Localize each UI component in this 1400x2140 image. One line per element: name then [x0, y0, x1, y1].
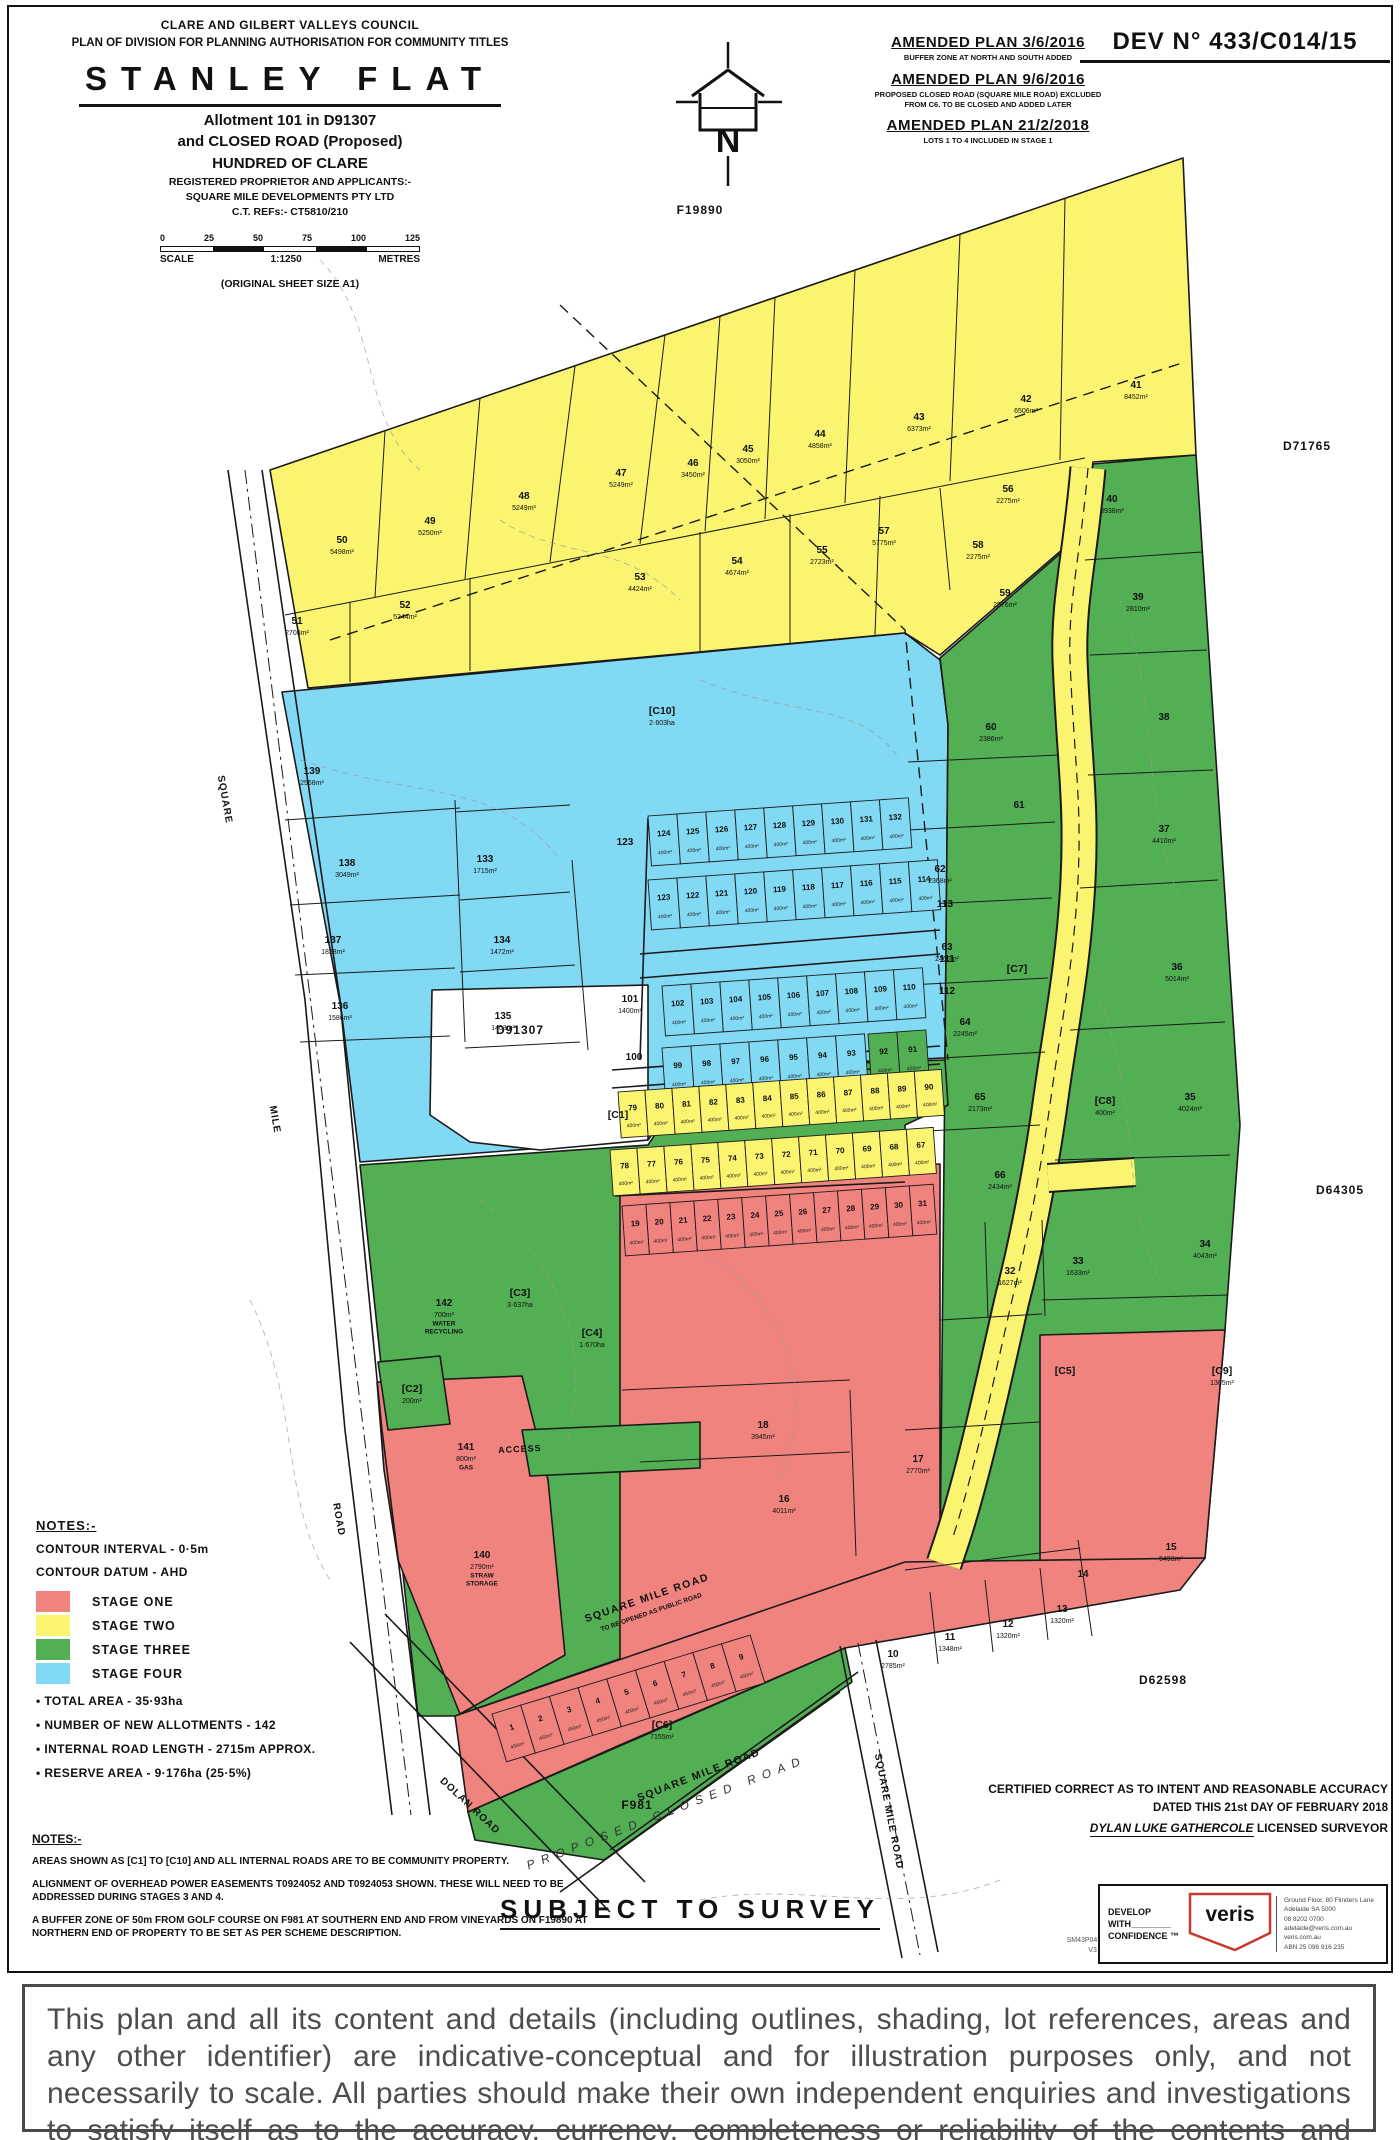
small-lot-number: 103 [700, 996, 714, 1006]
lot-number: 141 [458, 1442, 475, 1453]
small-lot-number: 107 [815, 988, 829, 998]
small-lot-number: 104 [729, 994, 743, 1004]
amendment-note: PROPOSED CLOSED ROAD (SQUARE MILE ROAD) … [818, 90, 1158, 110]
small-lot-area: 400m² [680, 1119, 695, 1126]
lot-area: 5493m² [1159, 1556, 1183, 1563]
small-lot-number: 88 [870, 1086, 880, 1096]
small-lot-area: 400m² [627, 1122, 642, 1129]
veris-logo: veris [1184, 1891, 1276, 1958]
small-lot-area: 400m² [915, 1160, 930, 1167]
hundred-line: HUNDRED OF CLARE [55, 155, 525, 174]
small-lot-cell [887, 1071, 917, 1119]
small-lot-cell [753, 1081, 783, 1129]
lot-sublabel: GAS [459, 1465, 474, 1472]
small-lot-area: 400m² [653, 1238, 668, 1245]
small-lot-area: 400m² [701, 1235, 716, 1242]
small-lot-number: 99 [673, 1061, 683, 1071]
small-lot-area: 400m² [745, 907, 760, 914]
allotment-line: Allotment 101 in D91307 [55, 112, 525, 131]
small-lot-cell [833, 1075, 863, 1123]
dev-number: DEV N° 433/C014/15 [1080, 28, 1390, 63]
small-lot-number: 78 [620, 1161, 630, 1171]
region-access [522, 1422, 700, 1476]
small-lot-number: 77 [647, 1159, 657, 1169]
small-lot-area: 400m² [821, 1226, 836, 1233]
small-lot-number: 27 [822, 1205, 832, 1215]
small-lot-number: 24 [750, 1210, 760, 1220]
proprietor-label: REGISTERED PROPRIETOR AND APPLICANTS:- [55, 176, 525, 189]
small-lot-number: 115 [888, 876, 902, 886]
lot-number: 66 [994, 1170, 1006, 1181]
scale-tick: 75 [302, 233, 312, 244]
small-lot-area: 400m² [677, 1236, 692, 1243]
small-lot-cell [735, 872, 767, 924]
lot-area: 2173m² [968, 1106, 992, 1113]
small-lot-area: 400m² [834, 1165, 849, 1172]
lot-number: 140 [474, 1550, 491, 1561]
small-lot-area: 400m² [860, 835, 875, 842]
legend-stage-row: STAGE TWO [36, 1615, 466, 1636]
adjacent-parcel-label: F19890 [677, 203, 724, 217]
scale-tick: 0 [160, 233, 165, 244]
small-lot-area: 400m² [889, 897, 904, 904]
small-lot-cell [836, 972, 868, 1024]
small-lot-cell [778, 976, 810, 1028]
lot-sublabel: STRAW [470, 1573, 494, 1580]
small-lot-cell [852, 1131, 882, 1179]
lot-area: 2810m² [1126, 606, 1150, 613]
sheet-size-note: (ORIGINAL SHEET SIZE A1) [55, 278, 525, 291]
lot-number: 43 [913, 412, 925, 423]
lot-number: [C9] [1212, 1365, 1232, 1377]
lot-number: 48 [518, 491, 530, 502]
small-lot-area: 400m² [797, 1228, 812, 1235]
small-lot-cell [706, 810, 738, 862]
lot-number: 39 [1132, 592, 1144, 603]
lot-area: 6506m² [1014, 408, 1038, 415]
lot-number: 57 [878, 526, 890, 537]
small-lot-cell [790, 1193, 817, 1245]
small-lot-number: 67 [916, 1140, 926, 1150]
small-lot-area: 400m² [888, 1162, 903, 1169]
lot-number: 53 [634, 572, 646, 583]
lot-area: 700m² [434, 1312, 455, 1319]
small-lot-number: 26 [798, 1207, 808, 1217]
lot-number: 16 [778, 1494, 790, 1505]
surveyor-line: DYLAN LUKE GATHERCOLE LICENSED SURVEYOR [940, 1821, 1388, 1835]
small-lot-number: 89 [897, 1084, 907, 1094]
small-lot-number: 30 [894, 1200, 904, 1210]
small-lot-cell [822, 866, 854, 918]
small-lot-area: 400m² [716, 845, 731, 852]
small-lot-area: 400m² [730, 1015, 745, 1022]
lot-number: 63 [941, 942, 953, 953]
small-lot-cell [851, 864, 883, 916]
small-lot-area: 400m² [672, 1019, 687, 1026]
small-lot-cell [745, 1139, 775, 1187]
legend-bullet: • INTERNAL ROAD LENGTH - 2715m APPROX. [36, 1742, 466, 1756]
small-lot-cell [837, 1189, 864, 1241]
small-lot-cell [664, 1144, 694, 1192]
lot-area: 2790m² [470, 1564, 494, 1571]
small-lot-number: 75 [701, 1155, 711, 1165]
small-lot-number: 19 [631, 1219, 641, 1229]
road-label: SQUARE [215, 775, 234, 825]
lot-number: 62 [934, 864, 946, 875]
small-lot-area: 400m² [753, 1171, 768, 1178]
small-lot-cell [645, 1088, 675, 1136]
small-lot-number: 82 [709, 1097, 719, 1107]
lot-number: [C7] [1007, 963, 1027, 975]
small-lot-cell [662, 984, 694, 1036]
small-lot-area: 400m² [734, 1115, 749, 1122]
small-lot-cell [648, 814, 680, 866]
small-lot-cell [893, 968, 925, 1020]
lot-number: 11 [945, 1632, 956, 1643]
small-lot-cell [914, 1069, 944, 1117]
lot-number: 37 [1158, 824, 1170, 835]
lot-number: [C1] [608, 1109, 628, 1121]
small-lot-number: 127 [744, 822, 758, 832]
legend-bullets: • TOTAL AREA - 35·93ha• NUMBER OF NEW AL… [36, 1694, 466, 1780]
lot-area: 1633m² [1066, 1270, 1090, 1277]
lot-number: 112 [939, 986, 956, 997]
lot-area: 3050m² [736, 458, 760, 465]
lot-area: 2245m² [953, 1031, 977, 1038]
lot-number: [C3] [510, 1287, 530, 1299]
stage-label: STAGE THREE [92, 1643, 191, 1657]
small-lot-number: 70 [835, 1146, 845, 1156]
lot-area: 800m² [456, 1456, 477, 1463]
small-lot-area: 400m² [687, 911, 702, 918]
small-lot-number: 68 [889, 1142, 899, 1152]
closed-road-line: and CLOSED ROAD (Proposed) [55, 133, 525, 152]
small-lot-cell [648, 878, 680, 930]
legend-stages: STAGE ONESTAGE TWOSTAGE THREESTAGE FOUR [36, 1591, 466, 1684]
small-lot-number: 25 [774, 1209, 784, 1219]
lot-number: 41 [1130, 380, 1142, 391]
lot-number: 65 [974, 1092, 986, 1103]
scale-label: SCALE [160, 254, 194, 267]
small-lot-number: 22 [702, 1214, 712, 1224]
lot-area: 3938m² [1100, 508, 1124, 515]
small-lot-cell [807, 1077, 837, 1125]
lot-area: 4011m² [772, 1508, 796, 1515]
lot-number: 45 [742, 444, 754, 455]
lot-number: 35 [1184, 1092, 1196, 1103]
small-lot-number: 131 [859, 814, 873, 824]
small-lot-cell [825, 1133, 855, 1181]
small-lot-number: 90 [924, 1082, 934, 1092]
lot-number: [C5] [1055, 1365, 1075, 1377]
small-lot-cell [742, 1196, 769, 1248]
small-lot-area: 400m² [707, 1117, 722, 1124]
small-lot-cell [807, 974, 839, 1026]
small-lot-number: 71 [808, 1148, 818, 1158]
small-lot-area: 400m² [774, 905, 789, 912]
small-lot-number: 23 [726, 1212, 736, 1222]
small-lot-area: 400m² [893, 1221, 908, 1228]
lot-area: 1586m² [328, 1015, 352, 1022]
veris-address: Ground Floor, 80 Flinders LaneAdelaide S… [1276, 1896, 1378, 1953]
small-lot-area: 400m² [749, 1231, 764, 1238]
small-lot-area: 400m² [802, 903, 817, 910]
lot-area: 3049m² [335, 872, 359, 879]
small-lot-number: 91 [908, 1045, 918, 1055]
lot-area: 2785m² [881, 1663, 905, 1670]
small-lot-number: 69 [862, 1144, 872, 1154]
small-lot-area: 400m² [773, 1230, 788, 1237]
small-lot-number: 110 [902, 982, 916, 992]
adjacent-parcel-label: D62598 [1139, 1673, 1187, 1687]
lot-number: 32 [1004, 1266, 1016, 1277]
stage-label: STAGE ONE [92, 1595, 174, 1609]
small-lot-cell [749, 978, 781, 1030]
small-lot-number: 81 [682, 1099, 692, 1109]
small-lot-area: 400m² [869, 1105, 884, 1112]
small-lot-number: 106 [786, 990, 800, 1000]
lot-sublabel: WATER [433, 1321, 456, 1328]
small-lot-cell [851, 800, 883, 852]
lot-number: 17 [912, 1454, 924, 1465]
lot-area: 2434m² [988, 1184, 1012, 1191]
small-lot-area: 400m² [918, 895, 933, 902]
lot-number: 14 [1077, 1569, 1089, 1580]
lot-area: 4674m² [725, 570, 749, 577]
lot-number: 18 [757, 1420, 769, 1431]
lot-number: 55 [816, 545, 828, 556]
small-lot-cell [718, 1141, 748, 1189]
small-lot-cell [699, 1084, 729, 1132]
small-lot-cell [780, 1079, 810, 1127]
legend-heading: NOTES:- [36, 1518, 466, 1533]
legend-bullet: • TOTAL AREA - 35·93ha [36, 1694, 466, 1708]
small-lot-area: 400m² [629, 1240, 644, 1247]
adjacent-parcel-label: F981 [621, 1798, 652, 1812]
small-lot-area: 400m² [699, 1175, 714, 1182]
small-lot-area: 400m² [774, 841, 789, 848]
lot-number: [C6] [652, 1719, 672, 1731]
lot-number: 113 [937, 899, 954, 910]
stage-label: STAGE FOUR [92, 1667, 183, 1681]
small-lot-number: 29 [870, 1202, 880, 1212]
small-lot-cell [879, 1129, 909, 1177]
small-lot-number: 84 [763, 1094, 773, 1104]
council-name: CLARE AND GILBERT VALLEYS COUNCIL [55, 18, 525, 33]
small-lot-cell [861, 1188, 888, 1240]
small-lot-area: 400m² [845, 1007, 860, 1014]
lot-sublabel: RECYCLING [425, 1329, 463, 1336]
lot-area: 6373m² [907, 426, 931, 433]
lot-area: 5775m² [872, 540, 896, 547]
lot-area: 1305m² [1210, 1380, 1234, 1387]
small-lot-cell [706, 874, 738, 926]
amendment-note: LOTS 1 TO 4 INCLUDED IN STAGE 1 [818, 136, 1158, 146]
small-lot-area: 400m² [831, 837, 846, 844]
lot-area: 4410m² [1152, 838, 1176, 845]
develop-with-confidence: DEVELOP WITH________ CONFIDENCE ™ [1108, 1906, 1184, 1942]
lot-sublabel: STORAGE [466, 1581, 499, 1588]
lot-number: 15 [1165, 1542, 1177, 1553]
lot-area: 2275m² [966, 554, 990, 561]
small-lot-cell [772, 1137, 802, 1185]
small-lot-number: 80 [655, 1101, 665, 1111]
lot-area: 2·603ha [649, 720, 675, 727]
ct-ref: C.T. REFs:- CT5810/210 [55, 206, 525, 219]
small-lot-area: 400m² [788, 1011, 803, 1018]
lot-number: [C8] [1095, 1095, 1115, 1107]
small-lot-cell [822, 802, 854, 854]
small-lot-number: 125 [686, 826, 700, 836]
lot-area: 2275m² [996, 498, 1020, 505]
lot-area: 1320m² [996, 1633, 1020, 1640]
amendment-title: AMENDED PLAN 9/6/2016 [818, 71, 1158, 88]
small-lot-area: 400m² [672, 1177, 687, 1184]
legend-bullet: • RESERVE AREA - 9·176ha (25·5%) [36, 1766, 466, 1780]
small-lot-cell [691, 1142, 721, 1190]
small-lot-number: 117 [831, 880, 845, 890]
lot-number: 139 [304, 766, 321, 777]
small-lot-cell [793, 804, 825, 856]
small-lot-area: 400m² [658, 913, 673, 920]
lot-number: 137 [325, 935, 342, 946]
small-lot-cell [720, 980, 752, 1032]
lot-number: 10 [887, 1649, 899, 1660]
small-lot-cell [646, 1203, 673, 1255]
small-lot-area: 400m² [842, 1107, 857, 1114]
stage-swatch [36, 1615, 70, 1636]
lot-area: 2368m² [928, 878, 952, 885]
small-lot-number: 118 [802, 882, 816, 892]
lot-area: 3945m² [751, 1434, 775, 1441]
lot-number: 44 [814, 429, 826, 440]
small-lot-area: 400m² [845, 1224, 860, 1231]
small-lot-number: 74 [728, 1153, 738, 1163]
small-lot-number: 121 [715, 888, 729, 898]
small-lot-area: 400m² [646, 1178, 661, 1185]
lot-number: 56 [1002, 484, 1014, 495]
legend-stage-row: STAGE FOUR [36, 1663, 466, 1684]
small-lot-cell [677, 812, 709, 864]
small-lot-number: 20 [654, 1217, 664, 1227]
lot-area: 7155m² [650, 1734, 674, 1741]
legend-bullet: • NUMBER OF NEW ALLOTMENTS - 142 [36, 1718, 466, 1732]
lot-area: 4043m² [1193, 1253, 1217, 1260]
lot-area: 4024m² [1178, 1106, 1202, 1113]
lot-number: 36 [1171, 962, 1183, 973]
small-lot-number: 124 [657, 828, 671, 838]
small-lot-area: 400m² [874, 1005, 889, 1012]
proprietor-name: SQUARE MILE DEVELOPMENTS PTY LTD [55, 191, 525, 204]
small-lot-number: 109 [873, 984, 887, 994]
small-lot-number: 108 [844, 986, 858, 996]
small-lot-number: 102 [671, 998, 685, 1008]
lot-number: 101 [622, 994, 639, 1005]
lot-area: 2770m² [906, 1468, 930, 1475]
small-lot-area: 400m² [923, 1102, 938, 1109]
small-lot-area: 400m² [687, 847, 702, 854]
lot-area: 1·670ha [579, 1342, 605, 1349]
small-lot-number: 93 [847, 1048, 857, 1058]
small-lot-number: 94 [818, 1050, 828, 1060]
small-lot-cell [764, 806, 796, 858]
small-lot-cell [793, 868, 825, 920]
small-lot-cell [735, 808, 767, 860]
lot-number: 135 [495, 1011, 512, 1022]
small-lot-area: 400m² [889, 833, 904, 840]
small-lot-number: 86 [816, 1090, 826, 1100]
small-lot-cell [885, 1186, 912, 1238]
certification-date: DATED THIS 21st DAY OF FEBRUARY 2018 [940, 1802, 1388, 1814]
title-block: CLARE AND GILBERT VALLEYS COUNCIL PLAN O… [55, 18, 525, 291]
adjacent-parcel-label: D64305 [1316, 1183, 1364, 1197]
lot-area: 5014m² [1165, 976, 1189, 983]
small-lot-number: 73 [755, 1152, 765, 1162]
small-lot-area: 400m² [860, 899, 875, 906]
stage-swatch [36, 1663, 70, 1684]
scale-tick: 100 [351, 233, 366, 244]
subject-to-survey: SUBJECT TO SURVEY [500, 1894, 880, 1930]
small-lot-cell [670, 1201, 697, 1253]
small-lot-cell [860, 1073, 890, 1121]
lot-area: 4858m² [808, 443, 832, 450]
lot-number: 34 [1199, 1239, 1211, 1250]
small-lot-number: 76 [674, 1157, 684, 1167]
lot-number: 138 [339, 858, 356, 869]
scale-ratio: 1:1250 [271, 254, 302, 267]
small-lot-cell [865, 970, 897, 1022]
north-arrow: N [676, 42, 782, 186]
small-lot-number: 85 [789, 1092, 799, 1102]
lot-area: 1472m² [490, 949, 514, 956]
certification-block: CERTIFIED CORRECT AS TO INTENT AND REASO… [940, 1782, 1388, 1835]
small-lot-number: 98 [702, 1059, 712, 1069]
legend-stage-row: STAGE ONE [36, 1591, 466, 1612]
lot-number: 111 [939, 954, 955, 965]
small-lot-number: 72 [781, 1150, 791, 1160]
north-letter: N [716, 122, 741, 160]
lot-number: 59 [999, 588, 1011, 599]
lot-area: 5249m² [609, 482, 633, 489]
small-lot-cell [879, 798, 911, 850]
lot-area: 2708m² [285, 630, 309, 637]
notes-heading: NOTES:- [32, 1832, 612, 1846]
adjacent-parcel-label: D71765 [1283, 439, 1331, 453]
lot-number: 52 [399, 600, 411, 611]
lot-number: 13 [1056, 1604, 1068, 1615]
small-lot-area: 400m² [745, 843, 760, 850]
small-lot-area: 400m² [831, 901, 846, 908]
small-lot-cell [766, 1194, 793, 1246]
small-lot-number: 116 [860, 878, 874, 888]
lot-number: 58 [972, 540, 984, 551]
lot-number: 33 [1072, 1256, 1084, 1267]
scale-units: METRES [378, 254, 420, 267]
lot-number: 50 [336, 535, 348, 546]
lot-area: 1320m² [1050, 1618, 1074, 1625]
small-lot-number: 128 [772, 820, 786, 830]
small-lot-number: 129 [801, 818, 815, 828]
small-lot-number: 126 [715, 824, 729, 834]
lot-number: 38 [1158, 712, 1170, 723]
plan-type: PLAN OF DIVISION FOR PLANNING AUTHORISAT… [55, 36, 525, 50]
small-lot-cell [799, 1135, 829, 1183]
certification-line: CERTIFIED CORRECT AS TO INTENT AND REASO… [940, 1782, 1388, 1796]
lot-number: 142 [436, 1298, 453, 1309]
small-lot-number: 130 [830, 816, 844, 826]
scale-tick: 50 [253, 233, 263, 244]
small-lot-area: 400m² [716, 909, 731, 916]
